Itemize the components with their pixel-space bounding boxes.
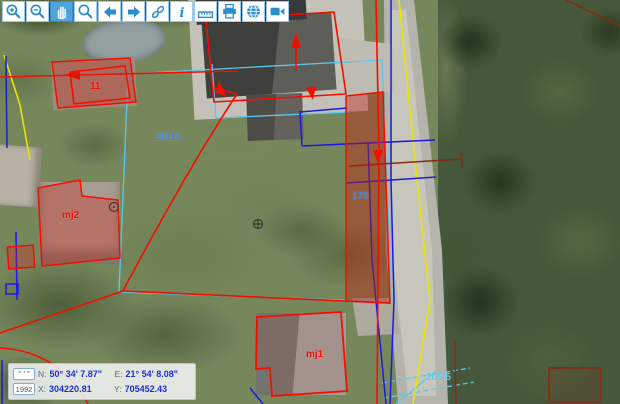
north-label: N: <box>38 369 47 379</box>
ruler-icon <box>197 3 214 20</box>
crs-1992-button[interactable]: 1992 <box>13 383 35 395</box>
east-value: 21° 54' 8.08" <box>126 369 179 379</box>
parcel-label: 38/13 <box>156 133 181 143</box>
red-parcel-layer <box>0 0 390 404</box>
y-label: Y: <box>114 384 122 394</box>
geo-coords-row: ° ′ ″ N: 50° 34' 7.87" E: 21° 54' 8.08" <box>13 367 191 381</box>
magnifier-icon <box>77 3 94 20</box>
building-label: mj2 <box>62 211 79 221</box>
building-label: 11 <box>90 82 101 92</box>
gis-viewer: 11 mj2 mj1 38/13 170 105/5 <box>0 0 620 404</box>
measure-button[interactable] <box>194 1 217 22</box>
info-icon: i <box>174 4 190 20</box>
hand-icon <box>54 4 70 20</box>
magnifier-plus-icon <box>5 3 22 20</box>
pan-button[interactable] <box>50 1 73 22</box>
camera-icon <box>269 3 286 20</box>
globe-icon <box>245 3 262 20</box>
grid-coords-row: 1992 X: 304220.81 Y: 705452.43 <box>13 382 191 396</box>
parcel-label: 105/5 <box>426 373 451 383</box>
x-value: 304220.81 <box>49 384 111 394</box>
link-button[interactable] <box>146 1 169 22</box>
full-extent-button[interactable] <box>242 1 265 22</box>
zoom-out-button[interactable] <box>26 1 49 22</box>
dms-format-button[interactable]: ° ′ ″ <box>13 368 35 380</box>
y-value: 705452.43 <box>125 384 168 394</box>
aerial-driveway <box>340 38 394 94</box>
previous-view-button[interactable] <box>98 1 121 22</box>
arrow-right-icon <box>126 4 142 20</box>
map-toolbar: i <box>2 1 289 22</box>
vector-overlay <box>0 0 620 404</box>
magnifier-minus-icon <box>29 3 46 20</box>
svg-text:i: i <box>179 6 184 20</box>
building-mj2-outline[interactable] <box>38 180 120 266</box>
arrow-left-icon <box>102 4 118 20</box>
x-label: X: <box>38 384 46 394</box>
parcel-label: 170 <box>352 192 369 202</box>
east-label: E: <box>115 369 123 379</box>
north-value: 50° 34' 7.87" <box>50 369 112 379</box>
next-view-button[interactable] <box>122 1 145 22</box>
printer-icon <box>221 3 238 20</box>
zoom-window-button[interactable] <box>74 1 97 22</box>
building-label: mj1 <box>306 350 323 360</box>
survey-point-icon <box>110 203 263 229</box>
identify-button[interactable]: i <box>170 1 193 22</box>
coordinate-statusbar: ° ′ ″ N: 50° 34' 7.87" E: 21° 54' 8.08" … <box>8 363 196 400</box>
link-icon <box>150 4 166 20</box>
zoom-in-button[interactable] <box>2 1 25 22</box>
video-button[interactable] <box>266 1 289 22</box>
building-mj1-outline[interactable] <box>256 312 347 396</box>
print-button[interactable] <box>218 1 241 22</box>
